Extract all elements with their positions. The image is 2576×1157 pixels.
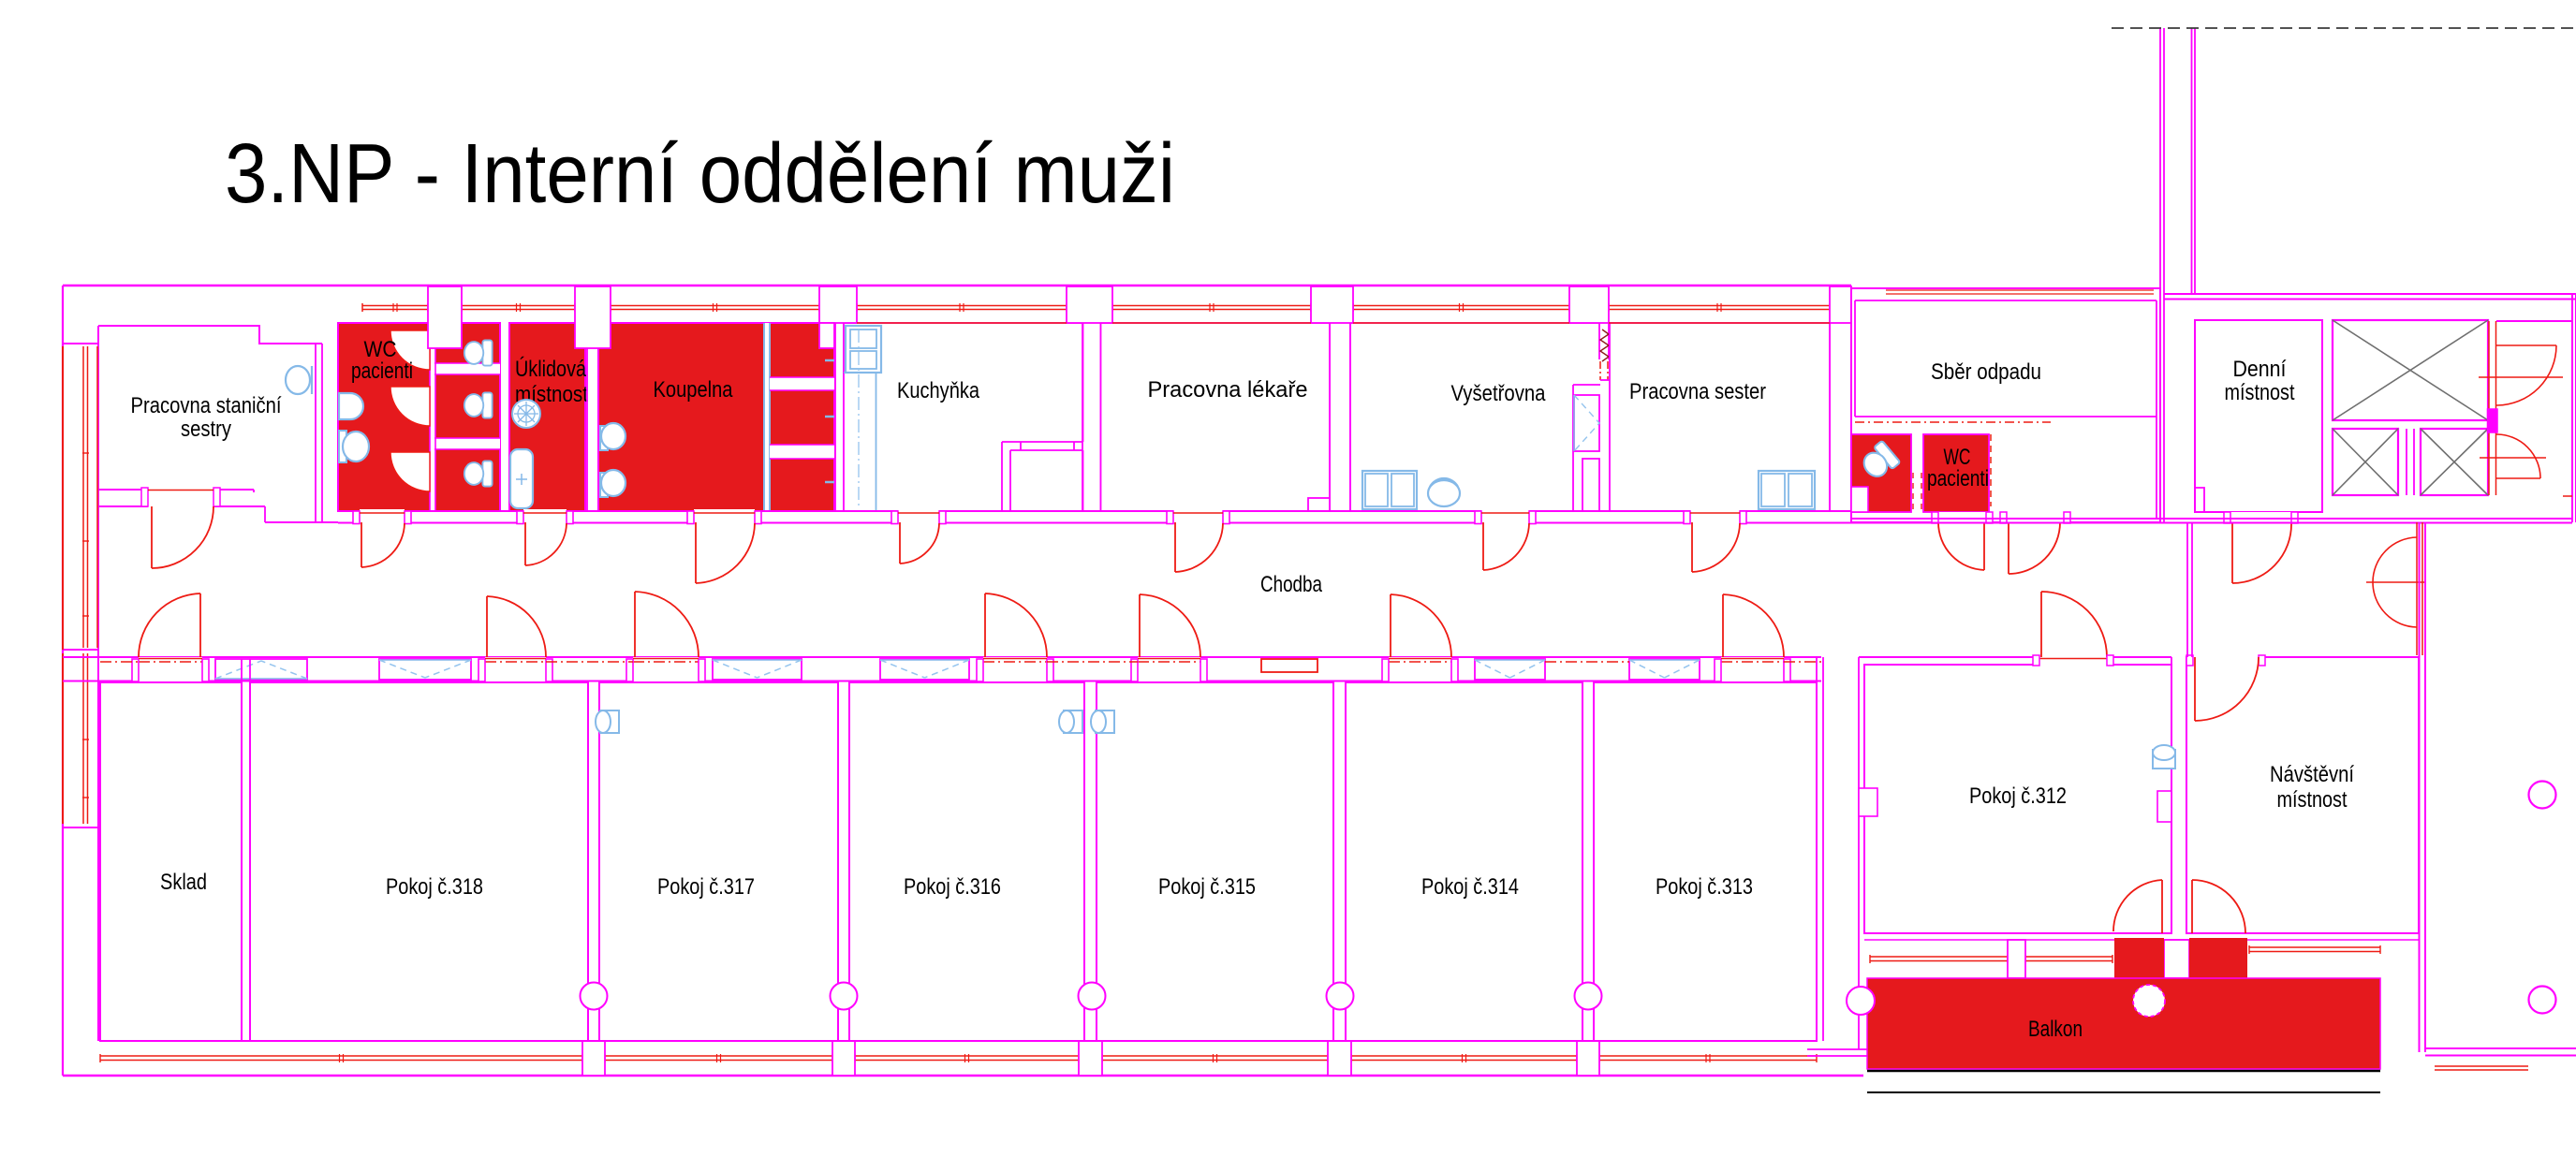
svg-text:Pokoj č.314: Pokoj č.314	[1421, 874, 1519, 900]
svg-text:Pracovna staniční: Pracovna staniční	[131, 393, 282, 418]
svg-text:místnost: místnost	[2225, 380, 2295, 405]
svg-text:Chodba: Chodba	[1260, 572, 1323, 597]
svg-text:pacienti: pacienti	[351, 359, 413, 384]
svg-text:Sklad: Sklad	[160, 870, 207, 895]
svg-text:Návštěvní: Návštěvní	[2270, 762, 2354, 787]
svg-text:Pracovna lékaře: Pracovna lékaře	[1148, 377, 1308, 403]
svg-text:Koupelna: Koupelna	[654, 377, 734, 403]
svg-text:Úklidová: Úklidová	[515, 357, 587, 382]
svg-text:Pokoj č.316: Pokoj č.316	[904, 874, 1001, 900]
svg-text:Pokoj č.317: Pokoj č.317	[657, 874, 755, 900]
svg-text:Pokoj č.315: Pokoj č.315	[1158, 874, 1256, 900]
svg-text:Pracovna sester: Pracovna sester	[1629, 379, 1766, 404]
svg-text:Balkon: Balkon	[2028, 1017, 2083, 1042]
svg-text:Pokoj č.312: Pokoj č.312	[1969, 784, 2067, 809]
svg-text:Pokoj č.318: Pokoj č.318	[386, 874, 483, 900]
svg-text:Pokoj č.313: Pokoj č.313	[1656, 874, 1753, 900]
svg-text:3.NP - Interní oddělení muži: 3.NP - Interní oddělení muži	[225, 127, 1175, 221]
svg-text:Kuchyňka: Kuchyňka	[897, 378, 980, 403]
svg-text:sestry: sestry	[181, 417, 231, 442]
svg-text:pacienti: pacienti	[1927, 466, 1989, 491]
svg-text:Sběr odpadu: Sběr odpadu	[1931, 359, 2041, 385]
svg-text:místnost: místnost	[2277, 787, 2348, 813]
svg-text:Denní: Denní	[2233, 357, 2287, 382]
svg-text:Vyšetřovna: Vyšetřovna	[1451, 381, 1547, 406]
